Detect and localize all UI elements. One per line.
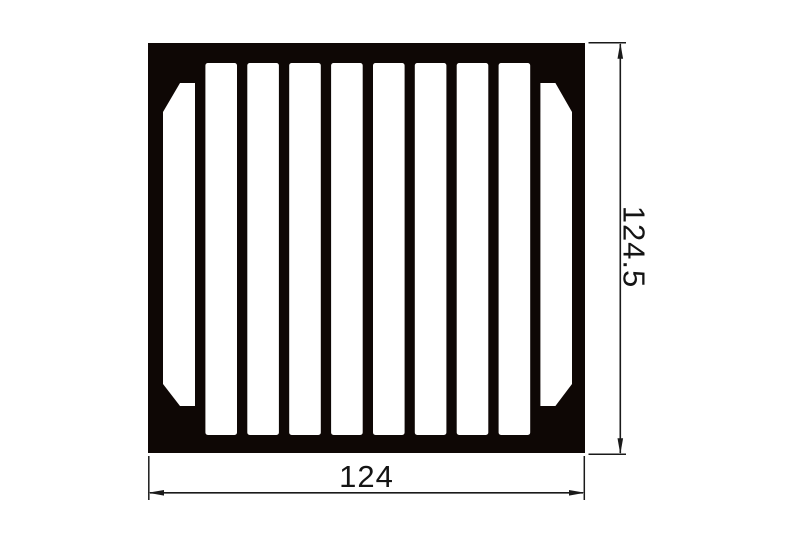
height-dimension: 124.5 xyxy=(589,43,652,455)
cad-drawing: 124 124.5 xyxy=(0,0,800,540)
fin-slot xyxy=(247,63,279,435)
fin-slot xyxy=(373,63,405,435)
width-dimension-label: 124 xyxy=(339,459,394,494)
fin-slot xyxy=(457,63,489,435)
fin-slot xyxy=(289,63,321,435)
drawing-canvas: 124 124.5 xyxy=(0,0,800,540)
left-mount-channel xyxy=(163,83,195,406)
fin-slot xyxy=(205,63,237,435)
heatsink-profile xyxy=(148,43,585,453)
width-dimension: 124 xyxy=(148,456,585,500)
fin-slot xyxy=(331,63,363,435)
arrow-up-icon xyxy=(618,43,624,59)
arrow-left-icon xyxy=(148,490,164,496)
arrow-down-icon xyxy=(618,438,624,454)
arrow-right-icon xyxy=(569,490,585,496)
fin-slot xyxy=(499,63,531,435)
height-dimension-label: 124.5 xyxy=(617,206,652,289)
fin-slot xyxy=(415,63,447,435)
right-mount-channel xyxy=(540,83,572,406)
